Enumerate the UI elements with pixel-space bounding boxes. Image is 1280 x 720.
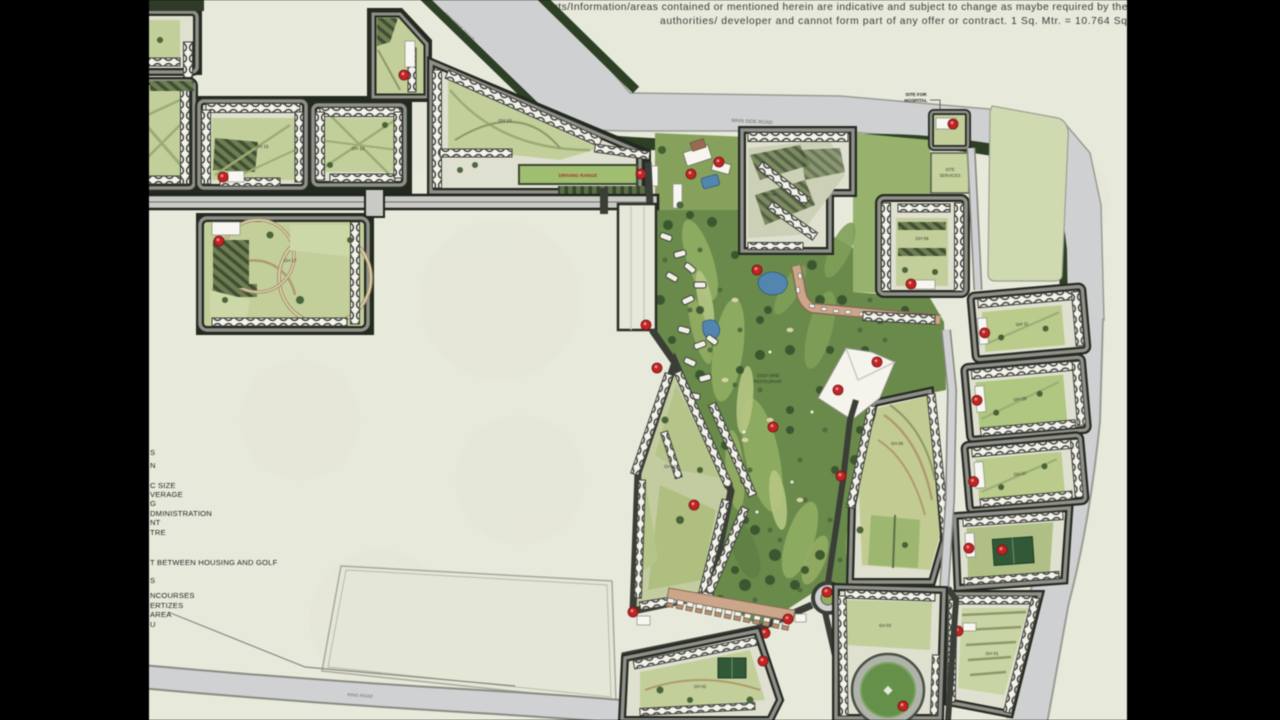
- svg-text:GH 20: GH 20: [664, 464, 677, 469]
- svg-text:NT: NT: [150, 518, 161, 527]
- svg-text:SERVICES: SERVICES: [939, 173, 960, 178]
- svg-text:GH 06: GH 06: [891, 441, 904, 446]
- svg-text:authorities/ developer and can: authorities/ developer and cannot form p…: [660, 16, 1148, 27]
- svg-text:GH 03: GH 03: [879, 623, 892, 628]
- svg-text:HOSPITAL: HOSPITAL: [905, 98, 928, 103]
- svg-text:SITE FOR: SITE FOR: [905, 92, 927, 97]
- svg-text:VERAGE: VERAGE: [150, 490, 183, 499]
- svg-text:C SIZE: C SIZE: [150, 481, 176, 490]
- svg-text:DMINISTRATION: DMINISTRATION: [150, 509, 212, 518]
- svg-text:G: G: [150, 499, 156, 508]
- svg-text:GH 04: GH 04: [763, 192, 777, 197]
- svg-text:N: N: [150, 461, 156, 470]
- svg-text:DRIVING RANGE: DRIVING RANGE: [559, 173, 598, 179]
- svg-text:SITE: SITE: [945, 167, 955, 172]
- svg-text:GOLF NINE: GOLF NINE: [757, 373, 780, 378]
- svg-text:GH 13: GH 13: [498, 118, 512, 123]
- svg-text:GH 15: GH 15: [255, 144, 269, 149]
- svg-text:GH 01: GH 01: [985, 651, 999, 656]
- svg-text:GH 12: GH 12: [351, 146, 365, 151]
- svg-text:RESTAURANT: RESTAURANT: [754, 379, 783, 384]
- svg-text:Layouts/Information/areas cont: Layouts/Information/areas contained or m…: [528, 2, 1128, 13]
- svg-text:GH 09: GH 09: [915, 236, 929, 241]
- svg-text:ERTIZES: ERTIZES: [150, 601, 183, 610]
- svg-text:NCOURSES: NCOURSES: [150, 591, 195, 600]
- svg-text:AREA: AREA: [150, 610, 172, 619]
- svg-text:S: S: [150, 448, 155, 457]
- svg-text:S: S: [150, 576, 155, 585]
- svg-text:U: U: [150, 620, 156, 629]
- svg-text:T BETWEEN HOUSING AND GOLF: T BETWEEN HOUSING AND GOLF: [150, 558, 278, 567]
- svg-text:TRE: TRE: [150, 528, 166, 537]
- svg-text:GH 02: GH 02: [694, 684, 707, 689]
- svg-text:GH 17: GH 17: [283, 258, 297, 263]
